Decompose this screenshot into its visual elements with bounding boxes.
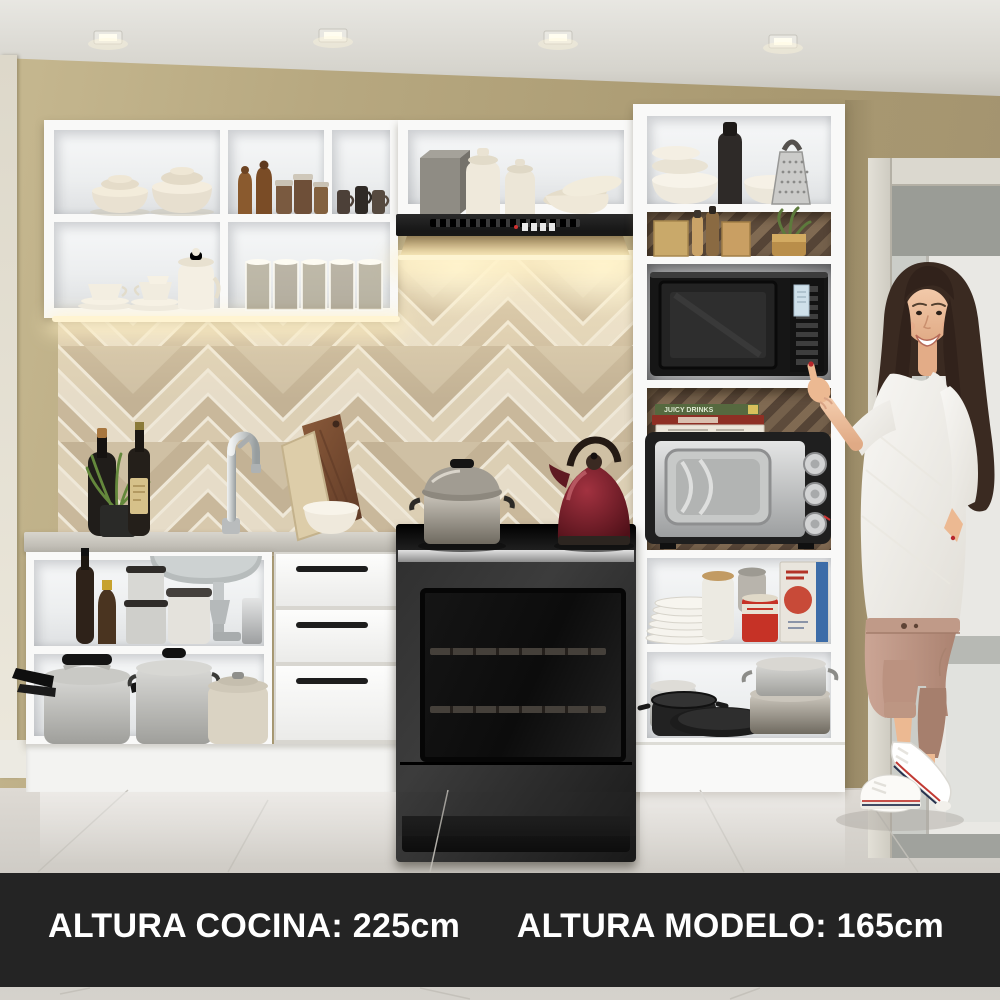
drawer-handle	[296, 622, 368, 628]
dimensions-banner: ALTURA COCINA: 225cm ALTURA MODELO: 165c…	[0, 873, 1000, 987]
left-baseboard	[0, 740, 27, 778]
doorway-floor	[892, 834, 1000, 858]
drawer-front	[276, 554, 396, 606]
oven-rack	[430, 706, 606, 713]
oven-window	[420, 588, 626, 762]
laundry-appliance	[946, 636, 1000, 822]
range-hood-filter	[400, 236, 630, 256]
stove-cooktop	[396, 524, 636, 550]
drawer-front	[276, 610, 396, 662]
oven-rack	[430, 648, 606, 655]
doorway-transom	[892, 186, 1000, 256]
shelf-compartment	[228, 222, 390, 308]
microwave-compartment	[647, 264, 831, 380]
stove-drawer	[402, 816, 630, 852]
cabinet-plinth	[26, 744, 400, 792]
under-cabinet-light	[52, 316, 400, 322]
countertop	[24, 532, 402, 552]
oven-compartment	[647, 388, 831, 550]
range-hood-light	[398, 255, 632, 260]
oven-door-gap	[400, 762, 632, 765]
shelf-compartment	[34, 560, 264, 646]
plinth-shadow-line	[633, 742, 845, 745]
doorway-jamb	[868, 158, 892, 858]
kitchen-height-label: ALTURA COCINA: 225cm	[48, 907, 460, 946]
left-door-frame	[0, 55, 17, 777]
wood-back-niche	[647, 212, 831, 256]
shelf-compartment	[54, 222, 220, 308]
drawer-handle	[296, 678, 368, 684]
drawer-handle	[296, 566, 368, 572]
model-height-label: ALTURA MODELO: 165cm	[517, 907, 944, 946]
range-hood-vents	[430, 219, 580, 227]
shelf-compartment	[647, 116, 831, 204]
kitchen-product-photo: JUICY DRINKS	[0, 0, 1000, 1000]
stove-steel-trim	[398, 550, 634, 562]
shelf-compartment	[647, 652, 831, 738]
shelf-compartment	[54, 130, 220, 214]
shelf-compartment	[408, 130, 624, 204]
shelf-compartment	[332, 130, 390, 214]
shelf-compartment	[34, 654, 264, 736]
shelf-compartment	[228, 130, 324, 214]
shelf-compartment	[647, 558, 831, 644]
